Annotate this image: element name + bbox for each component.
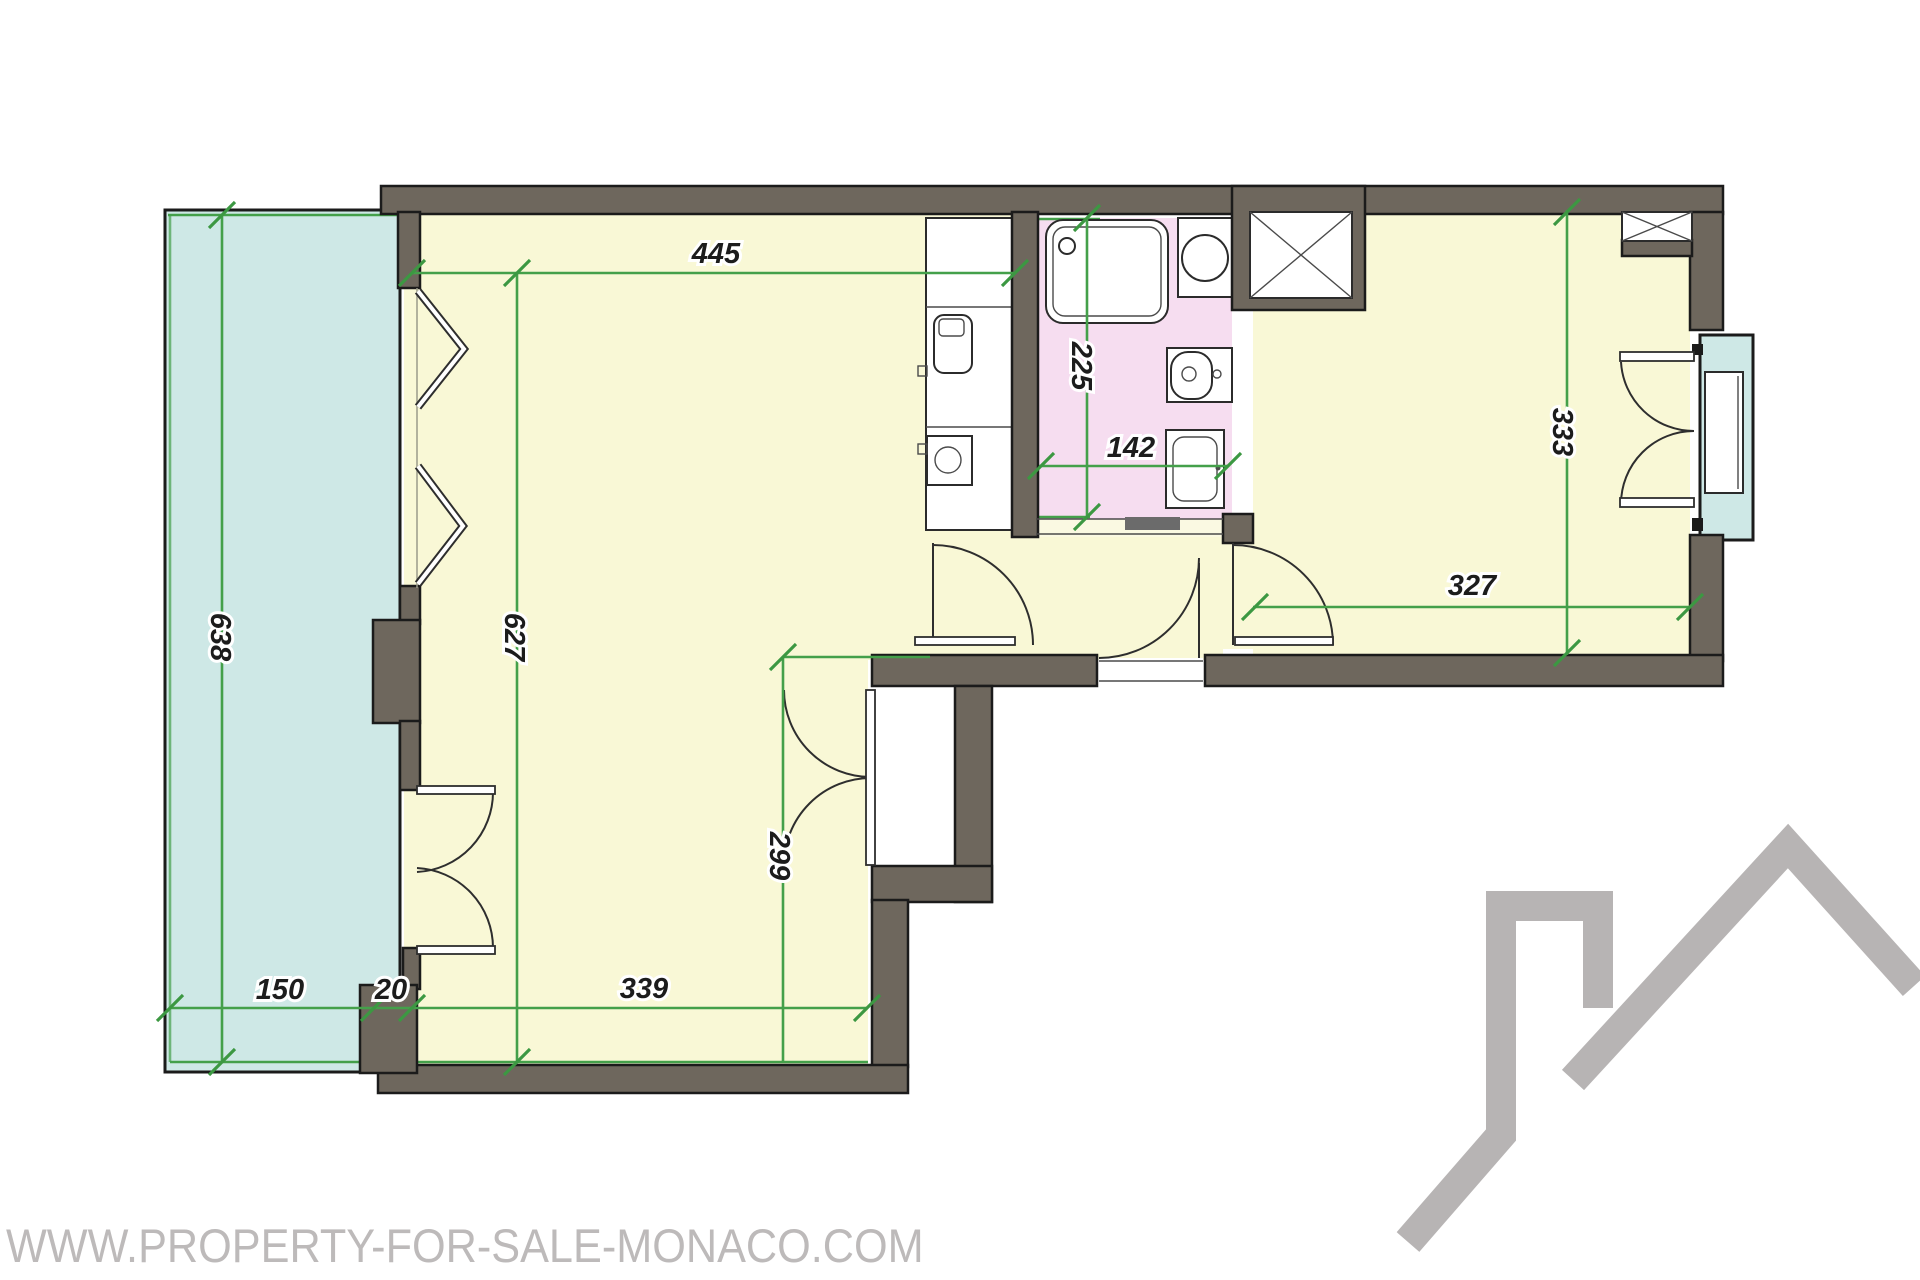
dim-333: 333	[1546, 408, 1578, 456]
house-logo-icon	[1408, 846, 1914, 1242]
dim-339: 339	[620, 973, 668, 1005]
floor-plan: 445 627 638 150 20 339 299 225 142 333 3…	[0, 0, 1920, 1280]
vent-crosshatch-icon	[1622, 212, 1692, 241]
dim-327: 327	[1448, 570, 1498, 602]
dim-627: 627	[498, 613, 530, 663]
dim-150: 150	[256, 974, 304, 1006]
dim-299: 299	[763, 831, 795, 880]
dim-20: 20	[374, 974, 407, 1006]
hallway-floor	[1034, 519, 1253, 660]
washing-machine-icon	[1178, 218, 1232, 297]
watermark-url: WWW.PROPERTY-FOR-SALE-MONACO.COM	[6, 1218, 924, 1273]
terrace-left	[165, 210, 400, 1072]
toilet-icon	[1166, 430, 1224, 508]
storage-recess-floor	[874, 686, 955, 868]
kitchen-sink-icon	[934, 315, 972, 373]
dim-142: 142	[1107, 432, 1155, 464]
washbasin-icon	[1167, 348, 1232, 402]
kitchen-counter	[918, 218, 1014, 530]
dim-638: 638	[204, 613, 236, 662]
dim-445: 445	[691, 238, 741, 270]
shaft-crosshatch-icon	[1250, 212, 1352, 298]
shower-icon	[1046, 220, 1168, 323]
dim-225: 225	[1065, 341, 1097, 391]
balcony-window-box-icon	[1705, 372, 1743, 493]
floor-plan-page: 445 627 638 150 20 339 299 225 142 333 3…	[0, 0, 1920, 1280]
cooktop-icon	[927, 436, 972, 485]
